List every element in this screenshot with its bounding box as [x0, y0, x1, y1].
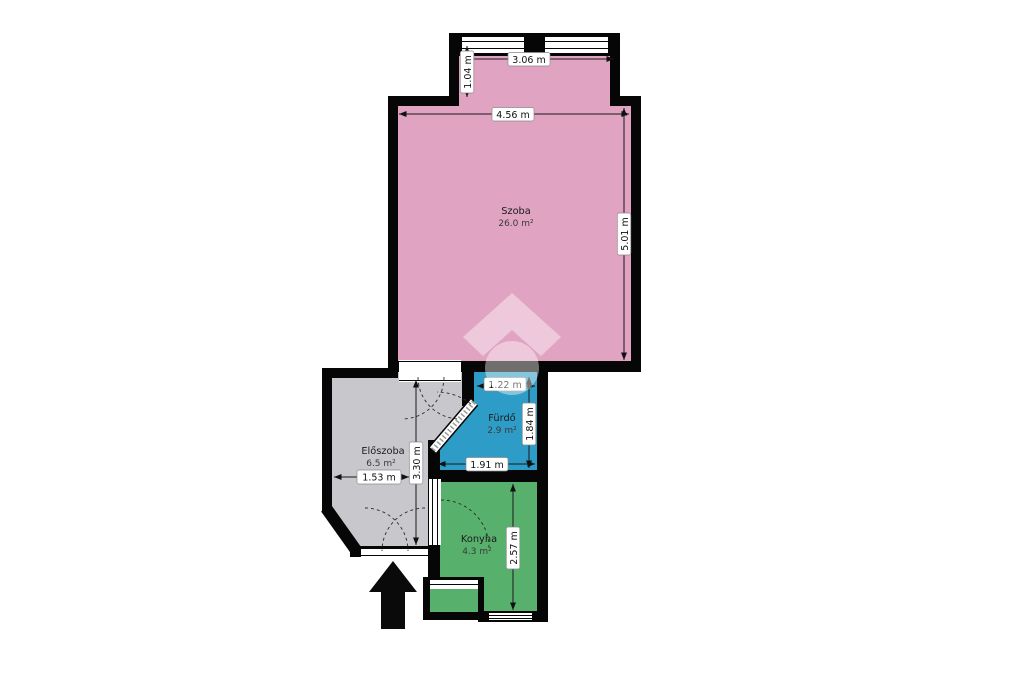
- floorplan-canvas: 3.06 m 1.04 m 4.56 m 5.01 m 1.22 m 1.84 …: [0, 0, 1024, 682]
- svg-text:6.5 m²: 6.5 m²: [366, 459, 396, 469]
- kitchen-alcove: [423, 577, 484, 620]
- svg-text:1.04 m: 1.04 m: [463, 55, 474, 88]
- svg-text:Előszoba: Előszoba: [361, 445, 404, 457]
- svg-text:Fürdő: Fürdő: [488, 412, 515, 424]
- dimension-label-eloszoba-width: 1.53 m: [357, 470, 401, 484]
- dimension-label-furdo-width: 1.91 m: [466, 458, 508, 472]
- dimension-label-upper-height: 1.04 m: [460, 51, 474, 93]
- svg-text:1.84 m: 1.84 m: [525, 407, 536, 440]
- svg-text:4.56 m: 4.56 m: [496, 110, 529, 121]
- entrance-arrow: [369, 561, 417, 629]
- svg-text:1.91 m: 1.91 m: [470, 460, 503, 471]
- door-szoba-eloszoba: [399, 360, 461, 382]
- door-entry: [361, 548, 428, 557]
- svg-text:3.06 m: 3.06 m: [512, 55, 545, 66]
- door-eloszoba-konyha: [429, 479, 441, 545]
- dimension-label-eloszoba-height: 3.30 m: [409, 442, 423, 484]
- window-kitchen: [489, 613, 532, 620]
- svg-text:2.57 m: 2.57 m: [509, 531, 520, 564]
- dimension-label-konyha-height: 2.57 m: [506, 527, 520, 569]
- svg-text:Szoba: Szoba: [501, 206, 531, 217]
- svg-text:2.9 m²: 2.9 m²: [487, 426, 517, 436]
- dimension-label-szoba-width: 4.56 m: [492, 108, 534, 122]
- window-top-right: [545, 37, 608, 53]
- svg-text:Konyha: Konyha: [461, 534, 497, 545]
- svg-text:26.0 m²: 26.0 m²: [498, 219, 534, 229]
- window-top-left: [462, 37, 524, 53]
- svg-text:1.53 m: 1.53 m: [362, 473, 395, 484]
- svg-text:4.3 m²: 4.3 m²: [462, 547, 492, 557]
- floorplan-drawing: 3.06 m 1.04 m 4.56 m 5.01 m 1.22 m 1.84 …: [0, 0, 1024, 682]
- svg-text:5.01 m: 5.01 m: [620, 217, 631, 250]
- dimension-label-szoba-height: 5.01 m: [617, 213, 631, 255]
- svg-text:3.30 m: 3.30 m: [412, 446, 423, 479]
- dimension-label-top-width: 3.06 m: [508, 53, 550, 67]
- dimension-label-furdo-height: 1.84 m: [522, 403, 536, 445]
